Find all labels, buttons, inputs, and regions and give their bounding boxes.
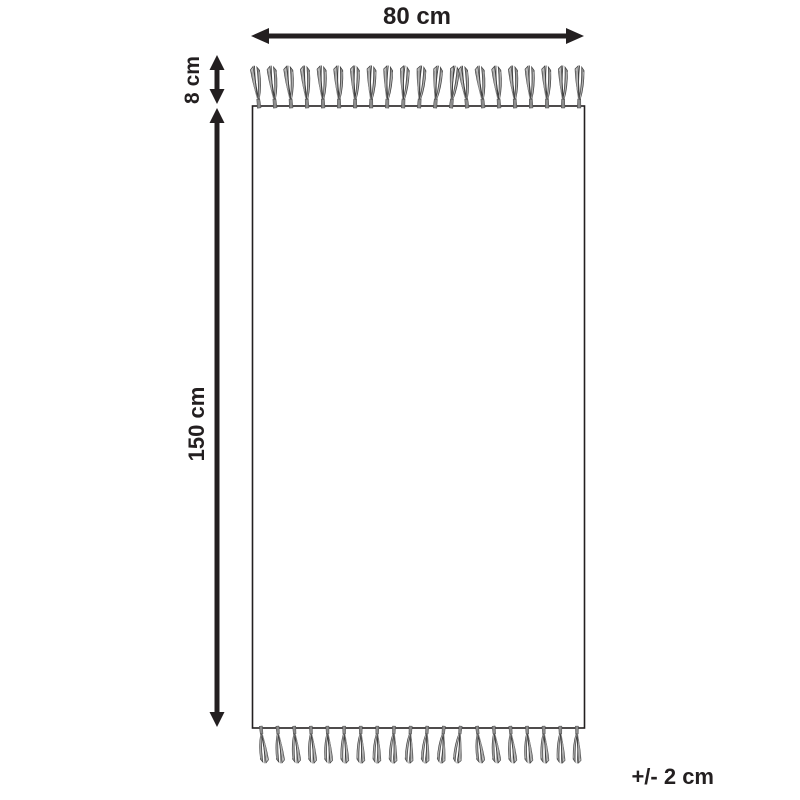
top-tassel-row xyxy=(250,65,584,108)
width-dimension-label: 80 cm xyxy=(251,3,583,31)
length-dimension-label: 150 cm xyxy=(184,364,210,484)
fringe-dimension-label: 8 cm xyxy=(180,30,206,130)
length-dimension-arrow xyxy=(210,108,225,727)
rug-dimension-diagram: 80 cm 8 cm 150 cm +/- 2 cm xyxy=(0,0,800,800)
bottom-tassel-row xyxy=(257,726,581,764)
rug-outline xyxy=(253,106,585,728)
fringe-dimension-arrow xyxy=(210,55,225,104)
diagram-drawing xyxy=(0,0,800,800)
tolerance-label: +/- 2 cm xyxy=(618,764,714,790)
